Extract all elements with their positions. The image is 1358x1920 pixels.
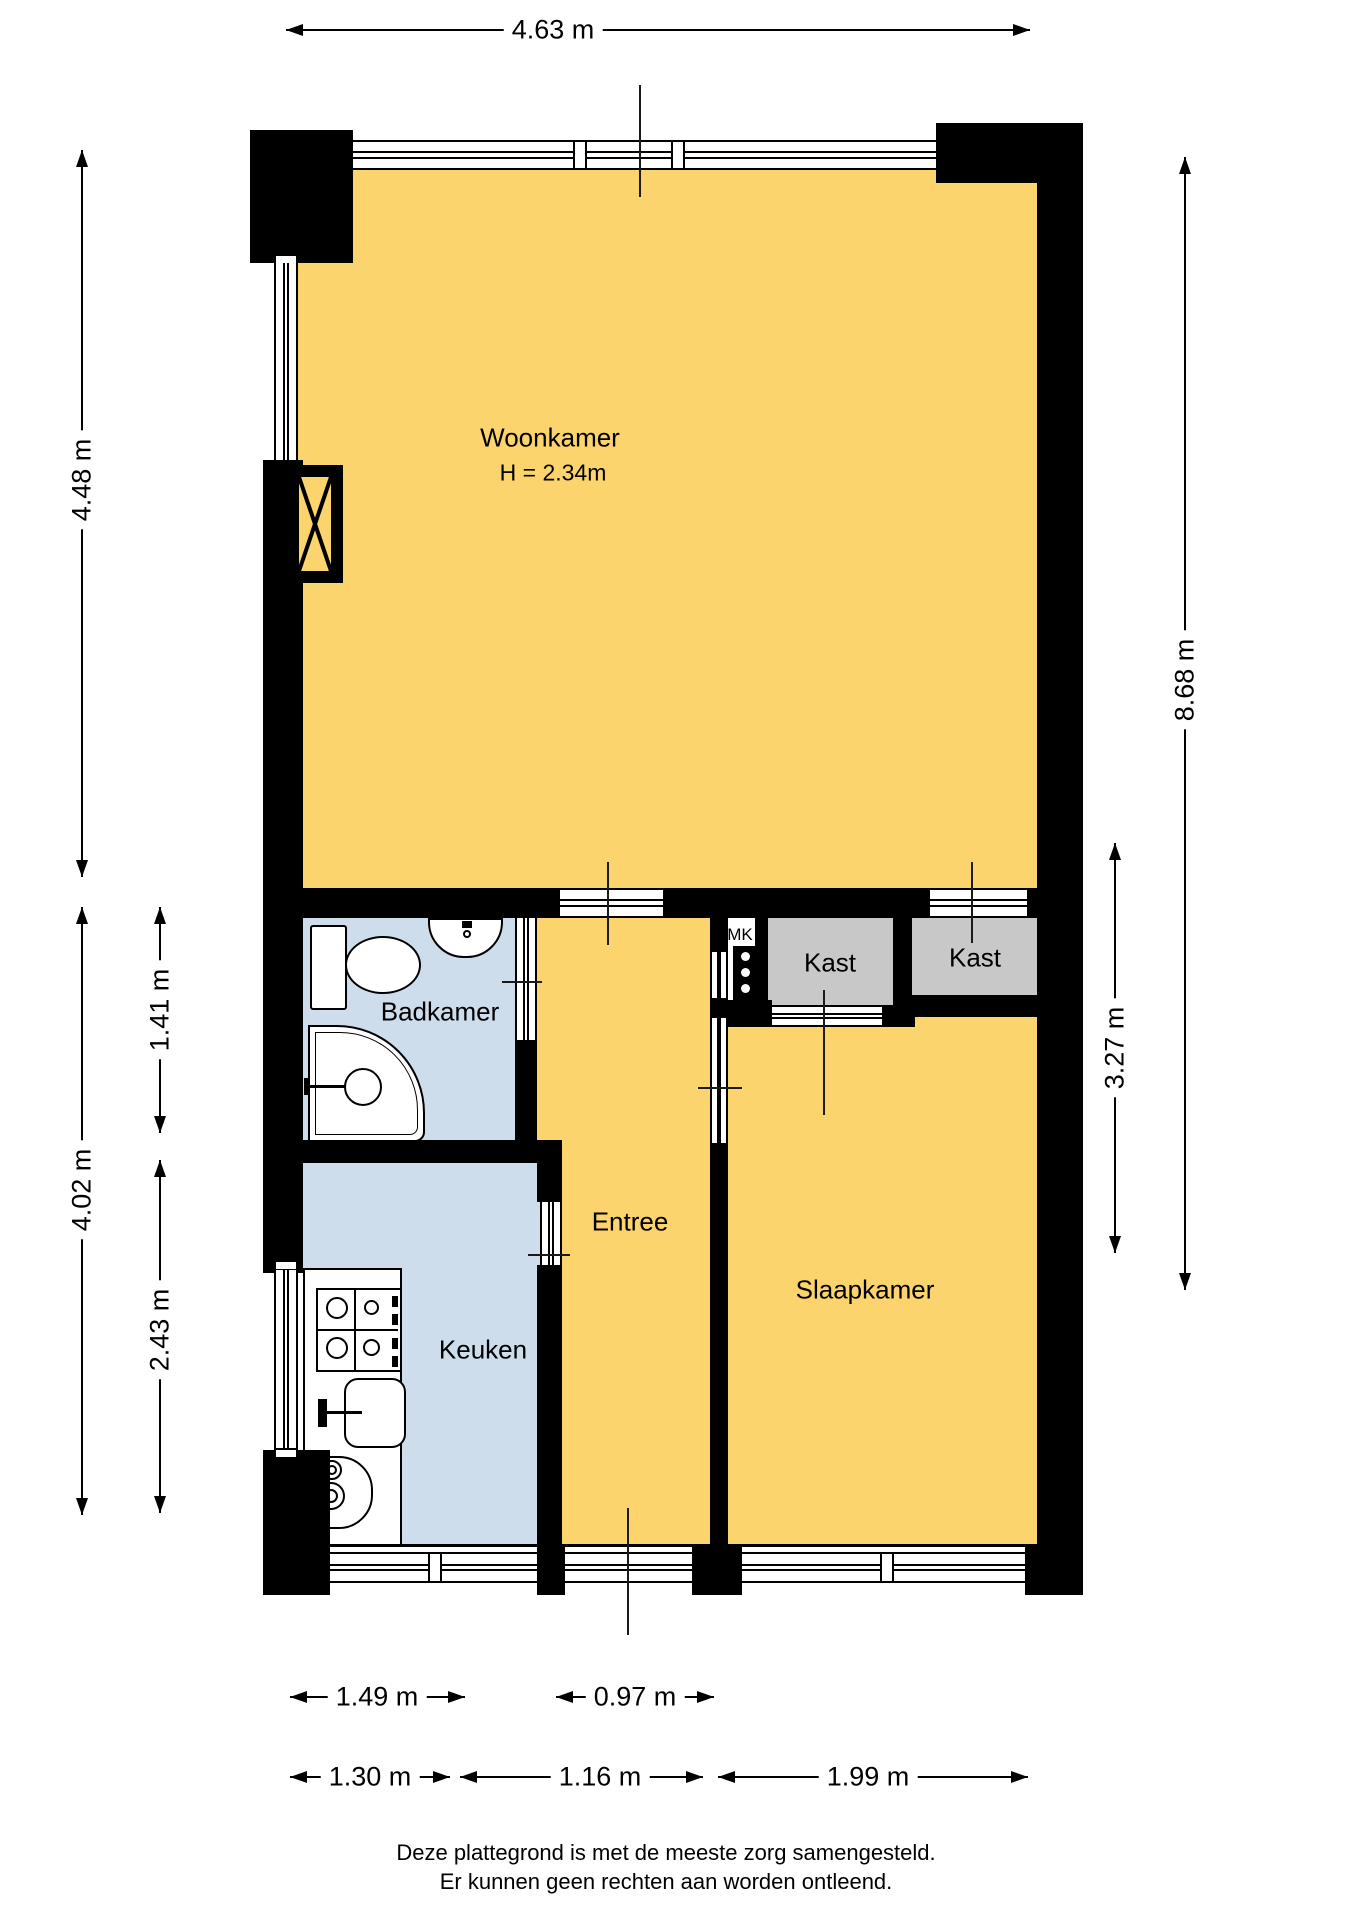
toilet-tank: [310, 925, 347, 1010]
wall-entree-east-lower: [710, 1143, 728, 1546]
room-label-kast-1: Kast: [804, 948, 856, 979]
meter-dial: [741, 952, 750, 961]
door-kast-2: [930, 888, 1027, 918]
window-mullion: [671, 142, 685, 168]
wall-living-south-left: [263, 888, 560, 918]
dimension-label: 8.68 m: [1170, 631, 1201, 730]
wall-bottom-inner-edge: [303, 1544, 1037, 1547]
room-label-slaapkamer: Slaapkamer: [796, 1275, 935, 1306]
dimension-label: 1.49 m: [328, 1682, 427, 1713]
wall-bottom-pier-2: [692, 1546, 742, 1595]
wall-living-south-mid: [663, 888, 930, 918]
dimension-label: 4.48 m: [67, 431, 98, 530]
disclaimer-line-2: Er kunnen geen rechten aan worden ontlee…: [0, 1867, 1332, 1896]
disclaimer: Deze plattegrond is met de meeste zorg s…: [0, 1838, 1332, 1896]
chimney-shaft-icon: [299, 477, 331, 571]
wall-corner-top-left: [250, 130, 353, 263]
door-meterkast: [710, 952, 728, 998]
dimension-label: 1.41 m: [145, 961, 176, 1060]
reference-line: [627, 1508, 629, 1635]
kitchen-tap-body: [318, 1399, 327, 1427]
wall-kitchen-east-upper: [537, 1163, 562, 1202]
dimension-label: 4.02 m: [67, 1141, 98, 1240]
reference-line: [607, 862, 609, 945]
wall-corner-top-right: [936, 123, 1083, 183]
stove-burner-4: [363, 1339, 380, 1356]
stove-grid-v: [354, 1290, 356, 1370]
toilet-bowl: [345, 936, 421, 994]
dimension-label: 3.27 m: [1100, 999, 1131, 1098]
wall-right: [1037, 183, 1083, 1595]
window-top: [353, 140, 936, 170]
room-label-kast-2: Kast: [949, 943, 1001, 974]
wall-entree-east-top: [710, 918, 728, 952]
reference-line: [971, 862, 973, 943]
wall-kast2-south: [912, 995, 1037, 1017]
stove-knob-1: [392, 1296, 398, 1307]
dimension-label: 1.16 m: [551, 1762, 650, 1793]
window-bottom-kitchen: [330, 1552, 537, 1583]
wall-kast-divider: [893, 918, 912, 1015]
stove-grid-h: [318, 1329, 398, 1331]
stove-knob-3: [392, 1338, 398, 1349]
dimension-label: 2.43 m: [145, 1281, 176, 1380]
floor-plan: Woonkamer H = 2.34m Badkamer MK Kast Kas…: [0, 0, 1358, 1920]
door-kast-1: [772, 1005, 882, 1027]
wall-bathroom-south: [263, 1140, 562, 1163]
wall-kitchen-east-lower: [537, 1265, 562, 1546]
reference-line: [698, 1087, 742, 1089]
stove-knob-2: [392, 1314, 398, 1325]
opening-living-entree: [560, 888, 663, 918]
room-woonkamer: [287, 163, 1037, 888]
shower-head-icon: [344, 1068, 382, 1106]
meter-dial: [741, 968, 750, 977]
washbasin-drain: [463, 930, 471, 938]
door-bathroom: [515, 918, 537, 1040]
washbasin-tap: [462, 921, 472, 928]
ceiling-height-note: H = 2.34m: [500, 460, 607, 487]
shower-arm: [306, 1085, 346, 1088]
stove-knob-4: [392, 1356, 398, 1367]
dimension-label: 1.99 m: [819, 1762, 918, 1793]
window-kitchen-left: [274, 1270, 298, 1450]
window-living-left: [274, 263, 298, 460]
reference-line: [528, 1254, 570, 1256]
stove-burner-2: [326, 1337, 348, 1359]
dimension-label: 4.63 m: [504, 15, 603, 46]
kitchen-tap-spout: [327, 1411, 362, 1414]
door-bedroom: [710, 1018, 728, 1143]
window-mullion: [573, 142, 587, 168]
room-label-entree: Entree: [592, 1207, 669, 1238]
wall-living-south-right: [1027, 888, 1042, 918]
wall-corner-bottom-right: [1025, 1546, 1083, 1595]
shower-wall-mount: [304, 1078, 310, 1095]
stove-burner-3: [364, 1300, 379, 1315]
meter-cabinet-icon: [733, 946, 757, 1000]
dimension-label: 0.97 m: [586, 1682, 685, 1713]
reference-line: [639, 85, 641, 197]
room-label-woonkamer: Woonkamer: [480, 423, 620, 454]
wall-corner-bottom-left: [263, 1450, 330, 1595]
wall-bottom-pier-1: [537, 1546, 565, 1595]
reference-line: [502, 981, 542, 983]
room-label-keuken: Keuken: [439, 1335, 527, 1366]
room-label-meterkast: MK: [727, 925, 753, 945]
meter-dial: [741, 984, 750, 993]
room-label-badkamer: Badkamer: [381, 997, 500, 1028]
reference-line: [823, 990, 825, 1115]
window-cap: [274, 1448, 298, 1459]
stove-burner-1: [326, 1297, 348, 1319]
dimension-label: 1.30 m: [321, 1762, 420, 1793]
window-mullion: [880, 1554, 894, 1581]
disclaimer-line-1: Deze plattegrond is met de meeste zorg s…: [0, 1838, 1332, 1867]
window-bottom-bedroom: [742, 1552, 1025, 1583]
window-mullion: [428, 1554, 442, 1581]
